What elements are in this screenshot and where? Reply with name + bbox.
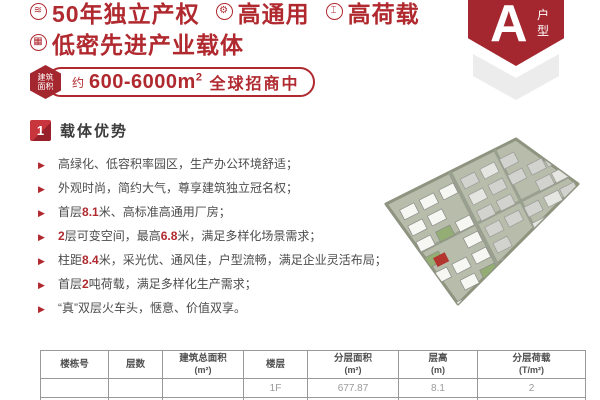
bullet-text: 米，满足多样化场景需求； bbox=[177, 229, 321, 243]
advantage-bullet: ▶高绿化、低容积率园区，生产办公环境舒适； bbox=[38, 158, 373, 171]
spec-column-unit: (m²) bbox=[309, 365, 397, 376]
advantage-bullet: ▶“真”双层火车头，惬意、价值双享。 bbox=[38, 302, 373, 315]
feature-gear: ⚙高通用 bbox=[216, 0, 310, 29]
site-building-white bbox=[449, 299, 468, 316]
flyer-page: ≋50年独立产权⚙高通用⌶高荷载 ▦低密先进产业载体 A 户 型 建筑 面积 约… bbox=[0, 0, 600, 400]
triangle-bullet-icon: ▶ bbox=[38, 207, 45, 220]
site-building-gray bbox=[584, 230, 598, 247]
spec-cell: 1F bbox=[244, 379, 308, 398]
triangle-bullet-icon: ▶ bbox=[38, 255, 45, 268]
unit-type-label: 户 型 bbox=[537, 9, 549, 38]
feature-layers: ≋50年独立产权 bbox=[30, 0, 200, 29]
spec-cell: 677.87 bbox=[308, 379, 399, 398]
spec-table-header-row: 楼栋号层数建筑总面积(m²)楼层分层面积(m²)层高(m)分层荷载(T/m²) bbox=[41, 351, 586, 379]
gear-icon: ⚙ bbox=[216, 3, 233, 20]
advantage-bullet: ▶首层2吨荷载，满足多样化生产需求； bbox=[38, 278, 373, 291]
site-building-gray bbox=[548, 248, 567, 265]
site-building-gray bbox=[568, 198, 587, 215]
spec-column-header: 层数 bbox=[109, 351, 163, 379]
spec-cell: 8.1 bbox=[399, 379, 478, 398]
feature-building: ▦低密先进产业载体 bbox=[30, 26, 244, 60]
highlight-value: 2 bbox=[82, 277, 89, 291]
highlight-value: 8.1 bbox=[82, 205, 99, 219]
spec-column-header: 分层荷载(T/m²) bbox=[478, 351, 586, 379]
feature-line-2: ▦低密先进产业载体 bbox=[30, 27, 420, 58]
advantage-bullet-list: ▶高绿化、低容积率园区，生产办公环境舒适；▶外观时尚，简约大气，尊享建筑独立冠名… bbox=[38, 158, 373, 326]
site-plan-image bbox=[366, 124, 598, 334]
highlight-value: 6.8 bbox=[161, 229, 178, 243]
bullet-text: 外观时尚，简约大气，尊享建筑独立冠名权； bbox=[58, 181, 298, 195]
building-icon: ▦ bbox=[30, 34, 47, 51]
feature-weight: ⌶高荷载 bbox=[326, 0, 420, 29]
unit-type-letter: A bbox=[490, 0, 528, 54]
site-building-gray bbox=[560, 222, 579, 239]
triangle-bullet-icon: ▶ bbox=[38, 279, 45, 292]
bullet-text: 高绿化、低容积率园区，生产办公环境舒适； bbox=[58, 157, 298, 171]
site-building-white bbox=[413, 277, 432, 294]
bullet-text: 层可变空间，最高 bbox=[65, 229, 161, 243]
spec-column-header: 建筑总面积(m²) bbox=[163, 351, 244, 379]
feature-label: 高通用 bbox=[238, 0, 310, 29]
weight-icon: ⌶ bbox=[326, 3, 343, 20]
spec-cell bbox=[41, 379, 109, 398]
site-building-gray bbox=[529, 258, 548, 275]
feature-label: 高荷载 bbox=[348, 0, 420, 29]
spec-column-unit: (m²) bbox=[164, 365, 242, 376]
section-header: 1 载体优势 bbox=[30, 120, 128, 141]
spec-column-unit: (T/m²) bbox=[479, 365, 584, 376]
feature-label: 低密先进产业载体 bbox=[52, 26, 244, 60]
area-prefix: 约 bbox=[72, 74, 84, 91]
highlight-value: 2 bbox=[58, 229, 65, 243]
site-building-white bbox=[429, 309, 448, 326]
site-building-gray bbox=[535, 134, 554, 151]
bullet-text: “真”双层火车头，惬意、价值双享。 bbox=[58, 301, 246, 315]
bullet-text: 吨荷载，满足多样化生产需求； bbox=[89, 277, 257, 291]
highlight-value: 8.4 bbox=[82, 253, 99, 267]
triangle-bullet-icon: ▶ bbox=[38, 231, 45, 244]
triangle-bullet-icon: ▶ bbox=[38, 303, 45, 316]
bullet-text: 柱距 bbox=[58, 253, 82, 267]
unit-type-badge: A 户 型 bbox=[468, 0, 564, 66]
spec-column-unit: (m) bbox=[400, 365, 476, 376]
advantage-bullet: ▶柱距8.4米，采光优、通风佳，户型流畅，满足企业灵活布局； bbox=[38, 254, 373, 267]
bullet-text: 首层 bbox=[58, 205, 82, 219]
site-building-gray bbox=[521, 242, 540, 259]
section-number-cube-icon: 1 bbox=[30, 120, 51, 141]
spec-column-header: 楼层 bbox=[244, 351, 308, 379]
site-building-white bbox=[396, 245, 415, 262]
area-range: 600-6000m2 bbox=[89, 71, 202, 94]
site-building-gray bbox=[568, 238, 587, 255]
site-building-white bbox=[405, 261, 424, 278]
advantage-bullet: ▶首层8.1米、高标准高通用厂房； bbox=[38, 206, 373, 219]
spec-cell bbox=[163, 379, 244, 398]
triangle-bullet-icon: ▶ bbox=[38, 159, 45, 172]
bullet-text: 首层 bbox=[58, 277, 82, 291]
site-building-white bbox=[488, 279, 507, 296]
spec-table: 楼栋号层数建筑总面积(m²)楼层分层面积(m²)层高(m)分层荷载(T/m²) … bbox=[40, 350, 586, 400]
area-range-pill: 约 600-6000m2 全球招商中 bbox=[46, 67, 315, 97]
feature-label: 50年独立产权 bbox=[52, 0, 200, 29]
area-suffix: 全球招商中 bbox=[209, 70, 299, 94]
spec-column-header: 楼栋号 bbox=[41, 351, 109, 379]
site-building-white bbox=[421, 293, 440, 310]
area-pill-row: 建筑 面积 约 600-6000m2 全球招商中 bbox=[30, 65, 330, 99]
headline-features: ≋50年独立产权⚙高通用⌶高荷载 ▦低密先进产业载体 bbox=[30, 0, 420, 58]
advantage-bullet: ▶2层可变空间，最高6.8米，满足多样化场景需求； bbox=[38, 230, 373, 243]
table-row: 1F677.878.12 bbox=[41, 379, 586, 398]
spec-cell bbox=[109, 379, 163, 398]
triangle-bullet-icon: ▶ bbox=[38, 183, 45, 196]
feature-line-1: ≋50年独立产权⚙高通用⌶高荷载 bbox=[30, 0, 420, 27]
layers-icon: ≋ bbox=[30, 3, 47, 20]
section-title: 载体优势 bbox=[60, 120, 128, 141]
spec-column-header: 层高(m) bbox=[399, 351, 478, 379]
spec-column-header: 分层面积(m²) bbox=[308, 351, 399, 379]
site-building-gray bbox=[540, 232, 559, 249]
advantage-bullet: ▶外观时尚，简约大气，尊享建筑独立冠名权； bbox=[38, 182, 373, 195]
spec-cell: 2 bbox=[478, 379, 586, 398]
bullet-text: 米、高标准高通用厂房； bbox=[99, 205, 231, 219]
bullet-text: 米，采光优、通风佳，户型流畅，满足企业灵活布局； bbox=[99, 253, 387, 267]
